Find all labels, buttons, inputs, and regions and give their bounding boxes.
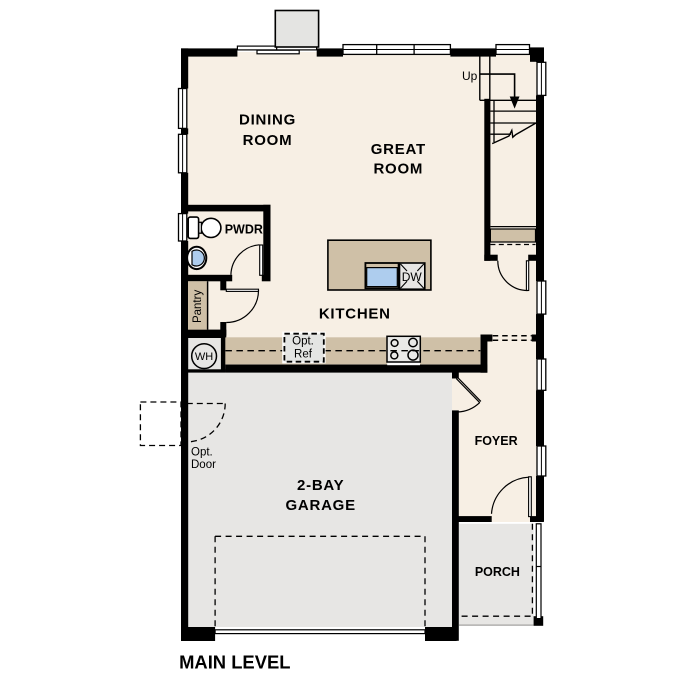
svg-text:2-BAY: 2-BAY (297, 477, 344, 494)
svg-text:KITCHEN: KITCHEN (319, 305, 391, 322)
svg-text:PWDR: PWDR (225, 223, 263, 237)
svg-text:Door: Door (191, 459, 216, 471)
svg-text:WH: WH (195, 351, 213, 363)
svg-text:Opt.: Opt. (191, 446, 213, 458)
svg-text:DW: DW (402, 270, 423, 284)
svg-text:Pantry: Pantry (192, 290, 204, 323)
svg-text:GARAGE: GARAGE (286, 497, 356, 514)
svg-text:ROOM: ROOM (373, 160, 423, 177)
svg-text:Up: Up (462, 69, 478, 83)
svg-text:Ref: Ref (294, 349, 313, 361)
svg-text:MAIN LEVEL: MAIN LEVEL (179, 652, 290, 673)
svg-text:PORCH: PORCH (475, 565, 520, 579)
svg-text:GREAT: GREAT (371, 141, 426, 158)
svg-text:FOYER: FOYER (475, 434, 518, 448)
svg-text:Opt.: Opt. (292, 335, 314, 347)
svg-text:ROOM: ROOM (243, 132, 293, 149)
svg-text:DINING: DINING (239, 112, 296, 129)
